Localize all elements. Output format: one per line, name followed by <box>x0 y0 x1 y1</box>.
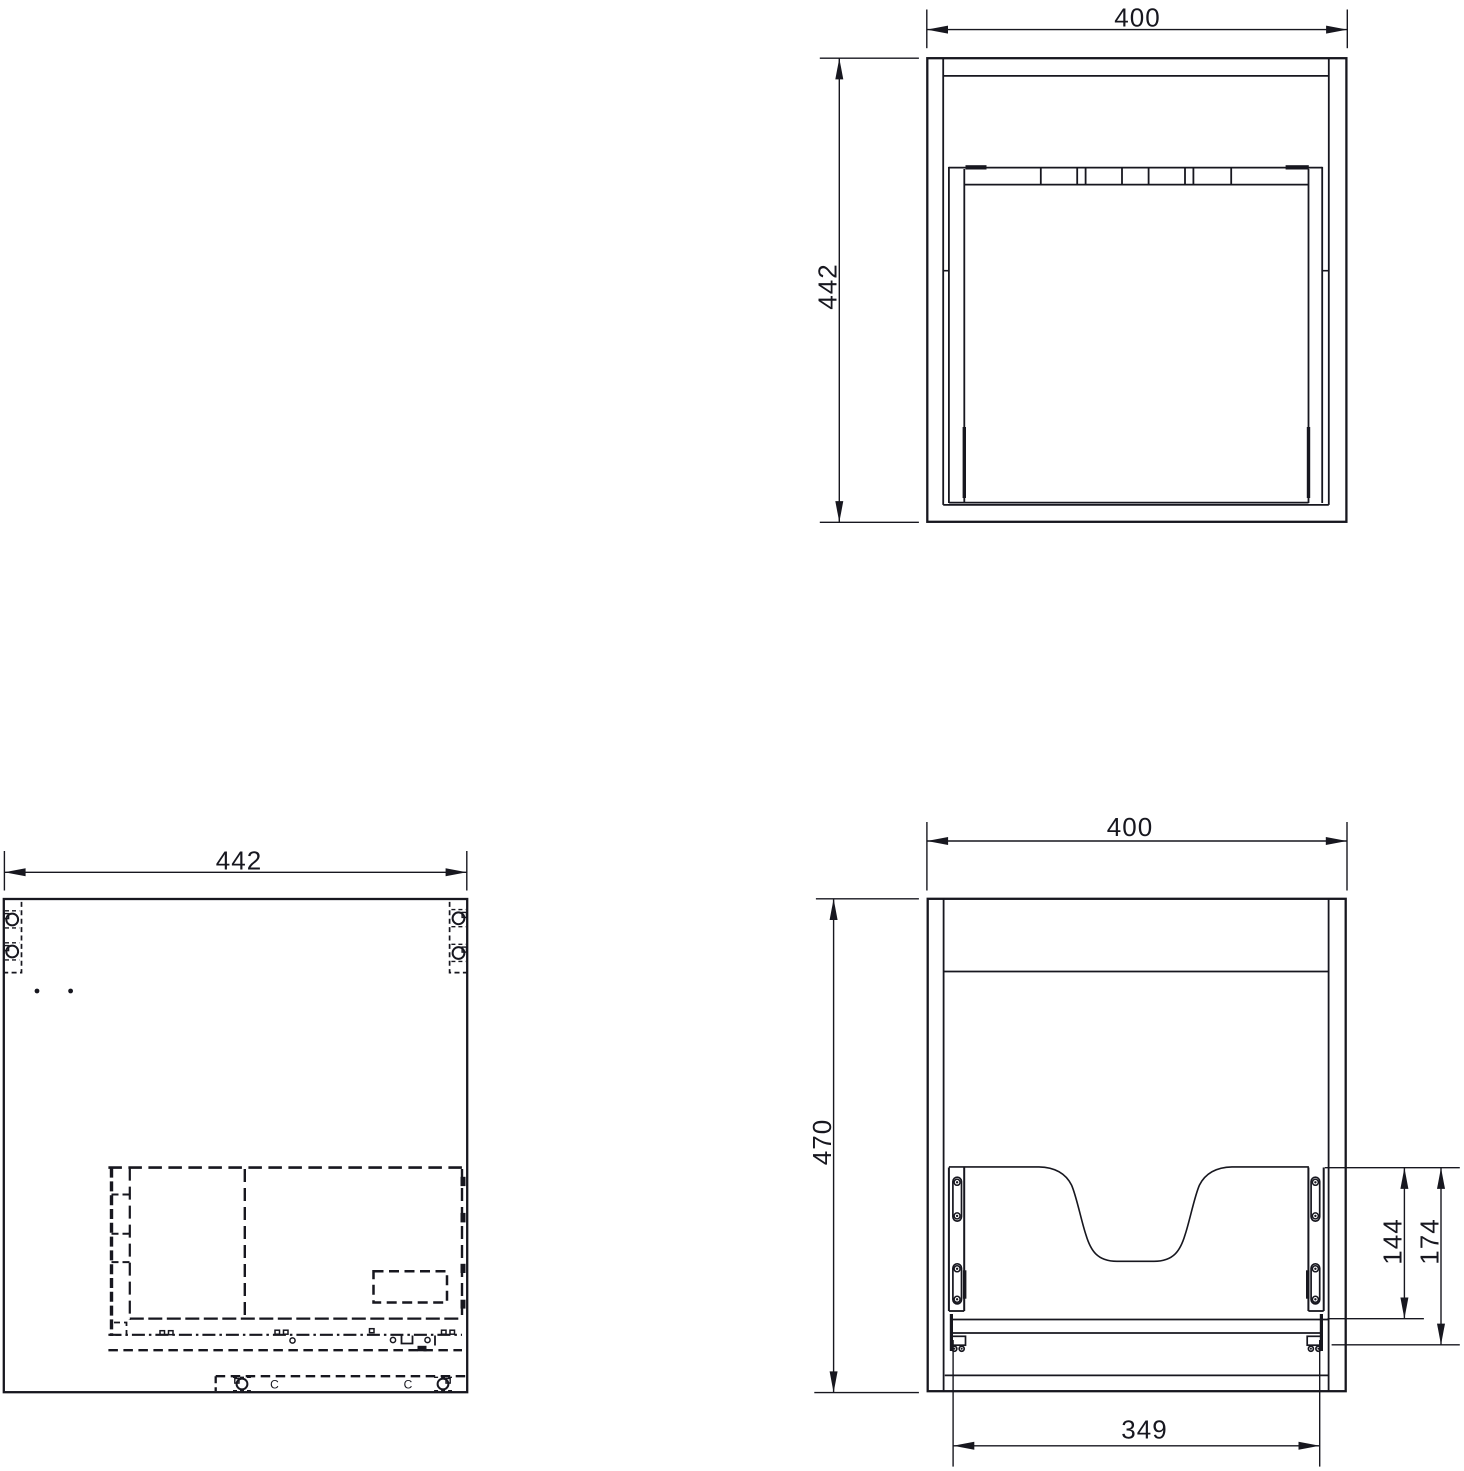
svg-text:442: 442 <box>813 263 843 309</box>
svg-text:349: 349 <box>1121 1415 1167 1445</box>
svg-text:442: 442 <box>216 845 262 875</box>
svg-text:470: 470 <box>807 1119 837 1165</box>
svg-text:400: 400 <box>1114 3 1160 33</box>
svg-text:C: C <box>404 1377 413 1391</box>
svg-text:400: 400 <box>1107 812 1153 842</box>
svg-text:144: 144 <box>1377 1218 1407 1264</box>
svg-text:C: C <box>270 1377 279 1391</box>
svg-text:174: 174 <box>1415 1218 1445 1264</box>
